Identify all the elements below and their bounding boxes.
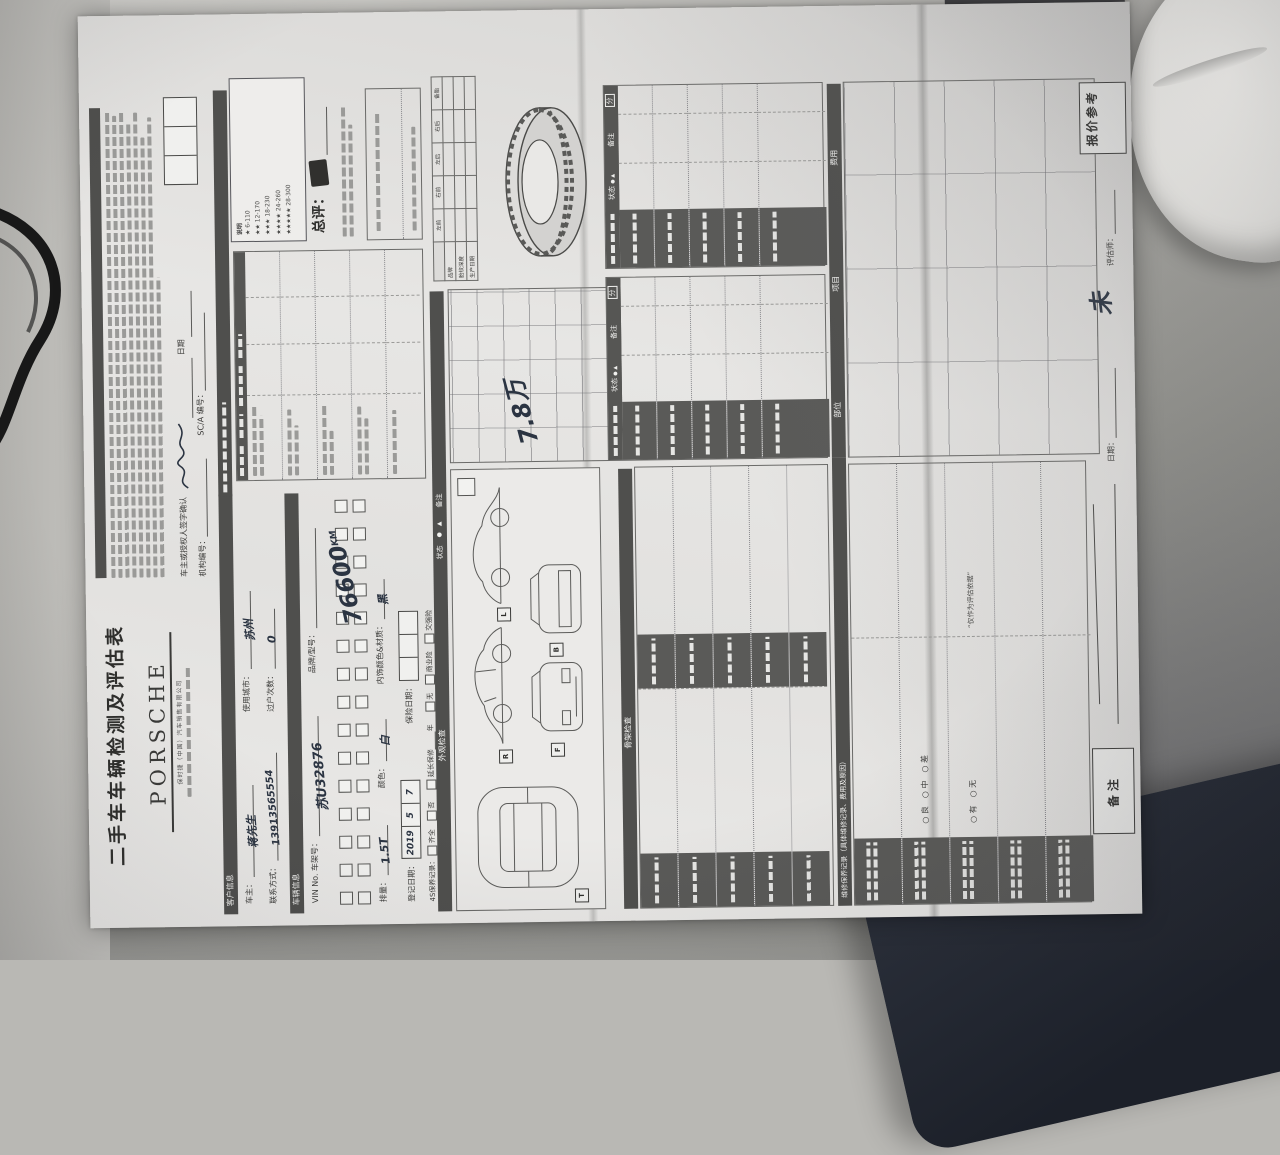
- interior-handwriting: 黑: [374, 593, 391, 606]
- maintenance-judgement-table: ○ 良 ○ 中 ○ 差 ○ 有 ○ 无“仅作为评估依据”: [848, 460, 1092, 905]
- insurance-date-field: 保险日期：: [398, 611, 420, 724]
- org-no-label: 机构编号：: [198, 537, 208, 577]
- warranty-label: 延长保修: [427, 749, 435, 777]
- exterior-section-label: 外观检查: [436, 729, 450, 761]
- sign-confirm-label: 车主或授权人签字确认: [179, 497, 189, 577]
- reg-day-handwriting: 7: [402, 789, 420, 796]
- brand-logo-block: PORSCHE 保时捷（中国）汽车销售有限公司: [144, 632, 192, 833]
- signature-line: [1093, 504, 1100, 704]
- option-checkbox: [340, 864, 353, 877]
- inspection-items-table: [233, 249, 426, 482]
- diagram-tag: R: [499, 749, 513, 763]
- yesno-options: ○ 有 ○ 无: [967, 780, 979, 823]
- remark-header: 备注: [607, 308, 622, 356]
- signature-row: 车主或授权人签字确认 日期: [170, 291, 196, 577]
- option-checkbox: [424, 633, 434, 643]
- tire-col-spare: 备胎: [431, 77, 442, 110]
- sign-date-label: 日期: [177, 339, 186, 355]
- option-checkbox: [338, 724, 351, 737]
- remarks-box: 备注: [1092, 748, 1135, 835]
- rating-extra-table: [365, 88, 423, 241]
- city-label: 使用城市：: [242, 672, 252, 712]
- service-record-label: 4S保养记录：: [428, 858, 437, 902]
- option-checkbox: [336, 640, 349, 653]
- diagram-tag: F: [551, 743, 565, 757]
- displacement-handwriting: 1.5T: [377, 836, 393, 864]
- code-box: [163, 97, 198, 185]
- option-checkbox: [338, 780, 351, 793]
- tire-col-rr: 右后: [432, 110, 443, 143]
- diagram-tag: B: [549, 643, 563, 657]
- evaluation-basis-note: “仅作为评估依据”: [965, 572, 976, 628]
- diagram-tag: L: [497, 607, 511, 621]
- photo-scene: 二手车车辆检测及评估表 PORSCHE 保时捷（中国）汽车销售有限公司 车主或授…: [0, 0, 1280, 960]
- interior-check-table-1: 状态 ● ▲ 备注 分: [605, 274, 828, 461]
- mileage-unit-handwriting: KM: [328, 529, 341, 547]
- option-checkbox: [334, 500, 347, 513]
- car-rear-view-diagram: [528, 556, 591, 641]
- roadtest-price-handwriting: 7.8万: [494, 375, 545, 448]
- quote-reference-box: 报价参考: [1079, 82, 1127, 155]
- roadtest-status-header: 状态: [433, 545, 447, 559]
- bottom-date-label: 日期：: [1107, 438, 1116, 462]
- maintenance-col-item: 项目: [829, 276, 843, 292]
- form-title-block: 二手车车辆检测及评估表: [100, 624, 130, 866]
- maintenance-record-grid: [843, 78, 1100, 457]
- option-checkbox: [358, 863, 371, 876]
- option-checkbox: [358, 891, 371, 904]
- option-checkbox: [355, 695, 368, 708]
- option-checkbox: [356, 723, 369, 736]
- svc-opt-full: 齐全: [428, 829, 436, 843]
- option-checkbox: [337, 696, 350, 709]
- city-handwriting: 苏州: [240, 619, 258, 643]
- porsche-logo: PORSCHE: [144, 632, 174, 832]
- tire-row-tread: 胎纹深度: [455, 241, 467, 280]
- warranty-unit: 年: [427, 724, 435, 731]
- car-front-view-diagram: [530, 654, 593, 739]
- option-checkbox: [426, 779, 436, 789]
- registration-date-label: 登记日期：: [407, 862, 417, 902]
- frame-section-label: 骨架检查: [622, 717, 636, 749]
- section-bar-vehicle: 车辆信息: [284, 493, 304, 913]
- phone-handwriting: 13913565554: [264, 769, 283, 846]
- vin-label: VIN No. 车架号：: [310, 839, 320, 903]
- option-checkbox: [339, 808, 352, 821]
- vehicle-section-label: 车辆信息: [290, 873, 304, 905]
- option-checkbox: [355, 667, 368, 680]
- tire-table: 左前 右前 左后 右后 备胎 品牌 胎纹深度 生产日期: [431, 76, 479, 282]
- reg-year-handwriting: 2019: [402, 830, 420, 855]
- option-checkbox: [356, 751, 369, 764]
- section-bar-customer: 客户信息: [218, 494, 238, 914]
- option-checkbox: [338, 752, 351, 765]
- remark-header: 备注: [604, 116, 619, 164]
- ins-opt-compulsory: 交强险: [425, 610, 433, 631]
- frame-check-table: [634, 464, 834, 909]
- option-checkbox: [339, 836, 352, 849]
- tire-row-brand: 品牌: [444, 242, 456, 281]
- assessor-field: 评估师：: [1104, 190, 1116, 266]
- option-checkbox: [427, 811, 437, 821]
- status-header: 状态: [611, 378, 619, 392]
- score-header: 分: [605, 94, 615, 107]
- interior-label: 内饰颜色&材质：: [375, 622, 385, 684]
- option-checkbox: [340, 892, 353, 905]
- registration-date-box: 2019 5 7: [400, 780, 421, 859]
- owner-signature-scribble: [171, 420, 194, 494]
- bottom-date-field: 日期：: [1105, 368, 1117, 462]
- status-header: 状态: [608, 186, 616, 200]
- ins-opt-commercial: 商业险: [426, 651, 434, 672]
- grade-options: ○ 良 ○ 中 ○ 差: [919, 755, 931, 824]
- owner-label: 车主：: [245, 880, 254, 904]
- inspection-form-paper: 二手车车辆检测及评估表 PORSCHE 保时捷（中国）汽车销售有限公司 车主或授…: [78, 2, 1143, 929]
- option-checkbox: [357, 835, 370, 848]
- logo-fine-print-line: [186, 667, 192, 797]
- option-checkbox: [427, 845, 437, 855]
- option-checkbox: [353, 527, 366, 540]
- color-field: 颜色： 白: [376, 720, 388, 789]
- brand-model-field: 品牌/型号：: [305, 528, 318, 673]
- car-side-right-diagram: [459, 481, 517, 610]
- rating-note-lines: [341, 97, 357, 237]
- transfer-count-label: 过户次数：: [266, 672, 276, 712]
- insurance-date-label: 保险日期：: [405, 684, 415, 724]
- option-checkbox: [354, 639, 367, 652]
- color-label: 颜色：: [377, 764, 386, 788]
- tire-col-lf: 左前: [433, 209, 444, 242]
- terms-bar: [89, 108, 107, 578]
- city-field: 使用城市： 苏州: [240, 591, 253, 712]
- interior-field: 内饰颜色&材质： 黑: [374, 579, 386, 684]
- org-fields-row: 机构编号： SC/A 编号：: [194, 312, 209, 577]
- terms-fine-print: [105, 107, 168, 578]
- assessor-label: 评估师：: [1106, 234, 1115, 266]
- overall-grade-mark: [308, 159, 329, 187]
- overall-grade-label: 总评：: [311, 191, 328, 233]
- roadtest-legend: ● ▲: [433, 521, 447, 537]
- roadtest-grid: 7.8万: [448, 287, 610, 463]
- registration-date-field: 登记日期： 2019 5 7: [400, 780, 422, 902]
- tire-illustration: [485, 91, 604, 273]
- option-checkbox: [357, 807, 370, 820]
- color-handwriting: 白: [377, 735, 393, 746]
- interior-check-table-2: 状态 ● ▲ 备注 分: [603, 82, 826, 269]
- vin-field: VIN No. 车架号： 苏U32876: [307, 716, 321, 903]
- displacement-field: 排量： 1.5T: [377, 826, 389, 903]
- owner-handwriting: 蒋先生: [243, 814, 262, 848]
- status-legend: ● ▲: [610, 174, 616, 184]
- rating-legend-box: 说明 ★ 6-110 ★★ 12-170 ★★★ 18-230 ★★★★ 24-…: [229, 77, 307, 242]
- rating-level: ★★★★★ 28-300: [282, 84, 294, 234]
- insurance-date-box: [398, 611, 419, 681]
- phone-field: 联系方式： 13913565554: [266, 753, 279, 904]
- phone-label: 联系方式：: [269, 864, 279, 904]
- not-yet-handwriting: 未: [1081, 290, 1119, 318]
- sc-no-label: SC/A 编号：: [196, 390, 206, 435]
- option-checkbox: [425, 674, 435, 684]
- svc-opt-no: 否: [428, 802, 436, 809]
- car-side-left-diagram: [461, 621, 519, 750]
- brand-model-label: 品牌/型号：: [307, 630, 317, 673]
- roadtest-remark-header: 备注: [432, 493, 446, 507]
- ins-opt-none: 无: [426, 693, 434, 700]
- transfer-count-field: 过户次数： 0: [264, 609, 276, 712]
- maintenance-col-part: 部位: [831, 402, 845, 418]
- reg-month-handwriting: 5: [402, 812, 420, 819]
- status-legend: ● ▲: [613, 366, 619, 376]
- tire-col-rf: 右前: [432, 176, 443, 209]
- signature-line: [1114, 484, 1118, 724]
- option-checkbox: [337, 668, 350, 681]
- option-checkbox: [425, 702, 435, 712]
- diagram-tag: T: [575, 888, 589, 902]
- option-checkbox: [352, 499, 365, 512]
- customer-section-label: 客户信息: [224, 874, 238, 906]
- owner-field: 车主： 蒋先生: [242, 785, 255, 904]
- transfer-count-handwriting: 0: [265, 635, 278, 643]
- vin-handwriting: 苏U32876: [306, 741, 332, 811]
- porsche-logo-subtitle: 保时捷（中国）汽车销售有限公司: [173, 632, 185, 832]
- maintenance-col-cost: 费用: [828, 150, 842, 166]
- tire-row-dot: 生产日期: [466, 241, 478, 280]
- diagram-checkbox: [457, 478, 475, 496]
- score-header: 分: [608, 286, 618, 299]
- option-checkbox: [356, 779, 369, 792]
- tire-col-lr: 左后: [432, 143, 443, 176]
- car-diagrams-box: R L F B T: [450, 467, 606, 911]
- maintenance-section-label: 维修保养记录（具体维修记录、费用及原因）: [836, 758, 852, 898]
- car-top-view-diagram: [469, 772, 589, 902]
- overall-grade-row: 总评：: [307, 107, 329, 233]
- page-title: 二手车车辆检测及评估表: [100, 624, 130, 866]
- displacement-label: 排量：: [379, 878, 388, 902]
